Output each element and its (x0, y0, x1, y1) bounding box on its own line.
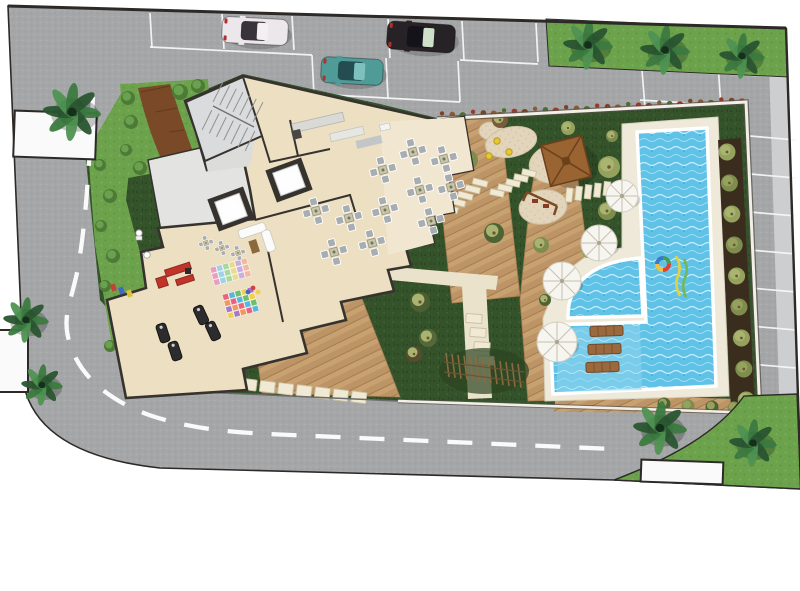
flower-shrub (502, 108, 506, 112)
plank-stone (593, 183, 601, 198)
flower-shrub (564, 105, 568, 109)
bush (95, 220, 107, 232)
swing-seat (543, 204, 549, 208)
stepping-stone (351, 391, 367, 404)
flower-shrub (595, 103, 599, 107)
swing-seat (532, 199, 538, 203)
bush (121, 91, 135, 105)
toilet (144, 252, 150, 258)
plank-stone (575, 186, 583, 201)
stepping-stone (278, 383, 294, 396)
stepping-stone (296, 385, 312, 398)
toy (251, 286, 256, 291)
plank-stone (565, 188, 573, 203)
weight-stack (185, 268, 191, 274)
bush (735, 361, 752, 378)
planter-bench (641, 460, 724, 485)
bush (410, 292, 430, 312)
bush (191, 79, 205, 93)
bush (172, 84, 188, 100)
bush (124, 115, 138, 129)
bush (598, 156, 620, 178)
bush (728, 268, 745, 285)
bush (419, 329, 437, 347)
bush (484, 223, 504, 243)
site-plan-canvas (0, 0, 800, 591)
bush (103, 189, 117, 203)
toilet (136, 230, 142, 236)
sun-loungers (586, 325, 623, 372)
bush (120, 144, 132, 156)
flower-shrub (626, 102, 630, 106)
spring-rider (494, 138, 500, 144)
bush (539, 294, 551, 306)
spring-rider (486, 153, 492, 159)
bush (719, 144, 736, 161)
bush (723, 206, 740, 223)
sun-lounger (590, 325, 623, 336)
bush (406, 346, 422, 362)
bush (133, 161, 147, 175)
spring-rider (506, 149, 512, 155)
bush (106, 249, 120, 263)
bush (721, 175, 738, 192)
flower-shrub (533, 107, 537, 111)
stepping-stone (332, 389, 348, 402)
site-plan-figure (0, 0, 800, 591)
bush (731, 299, 748, 316)
stepping-stone (466, 313, 483, 323)
stepping-stone (259, 380, 275, 393)
flower-shrub (471, 110, 475, 114)
bush (99, 280, 111, 292)
bush (533, 237, 549, 253)
toy (256, 290, 261, 295)
sun-lounger (588, 343, 621, 354)
toilet (136, 236, 142, 240)
bush (726, 237, 743, 254)
bush (561, 121, 575, 135)
bush (94, 159, 106, 171)
toy (246, 290, 251, 295)
flower-shrub (440, 111, 444, 115)
bush (606, 130, 618, 142)
plank-stone (584, 184, 592, 199)
sun-lounger (586, 361, 619, 372)
stepping-stone (470, 327, 487, 337)
bush (733, 330, 750, 347)
